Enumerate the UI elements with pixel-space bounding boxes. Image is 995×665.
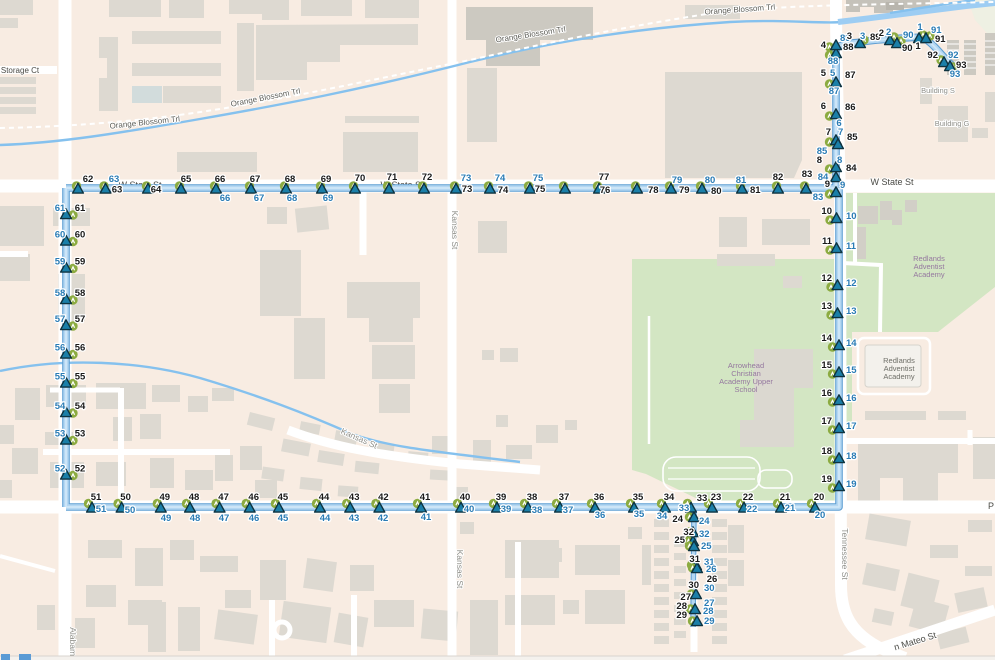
svg-text:Kansas St: Kansas St bbox=[455, 550, 465, 589]
svg-text:54: 54 bbox=[75, 401, 86, 412]
svg-text:75: 75 bbox=[533, 173, 544, 184]
svg-text:19: 19 bbox=[821, 474, 832, 485]
svg-text:18: 18 bbox=[846, 451, 857, 462]
svg-text:68: 68 bbox=[287, 193, 298, 204]
svg-text:81: 81 bbox=[736, 175, 747, 186]
svg-text:17: 17 bbox=[821, 416, 832, 427]
svg-text:53: 53 bbox=[75, 429, 86, 440]
svg-text:70: 70 bbox=[355, 173, 366, 184]
svg-text:10: 10 bbox=[846, 211, 857, 222]
svg-text:56: 56 bbox=[55, 343, 66, 354]
svg-text:65: 65 bbox=[181, 174, 192, 185]
svg-text:4: 4 bbox=[821, 40, 827, 51]
svg-text:33: 33 bbox=[697, 493, 708, 504]
svg-text:23: 23 bbox=[711, 492, 722, 503]
svg-text:21: 21 bbox=[780, 492, 791, 503]
svg-text:Kansas St: Kansas St bbox=[450, 211, 460, 250]
svg-text:6: 6 bbox=[821, 101, 826, 112]
svg-text:49: 49 bbox=[160, 492, 171, 503]
svg-text:85: 85 bbox=[847, 132, 858, 143]
svg-text:3: 3 bbox=[847, 31, 852, 42]
svg-text:79: 79 bbox=[672, 175, 683, 186]
svg-text:87: 87 bbox=[829, 86, 840, 97]
svg-text:15: 15 bbox=[846, 365, 857, 376]
svg-text:Building G: Building G bbox=[935, 119, 970, 128]
svg-text:83: 83 bbox=[813, 192, 824, 203]
svg-text:42: 42 bbox=[378, 492, 389, 503]
svg-text:66: 66 bbox=[215, 174, 226, 185]
svg-text:60: 60 bbox=[55, 230, 66, 241]
svg-text:45: 45 bbox=[278, 492, 289, 503]
svg-text:57: 57 bbox=[75, 314, 86, 325]
svg-text:10: 10 bbox=[821, 206, 832, 217]
svg-text:48: 48 bbox=[190, 513, 201, 524]
svg-text:42: 42 bbox=[378, 513, 389, 524]
svg-text:25: 25 bbox=[701, 541, 712, 552]
svg-text:56: 56 bbox=[75, 343, 86, 354]
svg-text:20: 20 bbox=[814, 492, 825, 503]
svg-text:2: 2 bbox=[879, 28, 884, 39]
svg-text:24: 24 bbox=[699, 516, 710, 527]
svg-text:14: 14 bbox=[821, 333, 832, 344]
svg-text:7: 7 bbox=[826, 127, 831, 138]
svg-text:50: 50 bbox=[125, 505, 136, 516]
svg-text:40: 40 bbox=[460, 492, 471, 503]
svg-text:44: 44 bbox=[319, 492, 330, 503]
svg-text:59: 59 bbox=[55, 257, 66, 268]
svg-text:54: 54 bbox=[55, 401, 66, 412]
svg-text:46: 46 bbox=[248, 492, 259, 503]
svg-text:22: 22 bbox=[743, 492, 754, 503]
svg-text:2: 2 bbox=[886, 27, 891, 38]
svg-text:61: 61 bbox=[75, 203, 86, 214]
svg-text:1: 1 bbox=[917, 22, 923, 33]
svg-text:58: 58 bbox=[75, 288, 86, 299]
svg-text:Building S: Building S bbox=[921, 86, 955, 95]
svg-text:84: 84 bbox=[846, 163, 857, 174]
svg-text:51: 51 bbox=[91, 492, 102, 503]
svg-text:7: 7 bbox=[838, 127, 843, 138]
svg-text:74: 74 bbox=[495, 173, 506, 184]
svg-text:41: 41 bbox=[420, 492, 431, 503]
svg-text:45: 45 bbox=[278, 513, 289, 524]
svg-text:Academy: Academy bbox=[883, 372, 915, 381]
svg-text:86: 86 bbox=[845, 102, 856, 113]
svg-text:41: 41 bbox=[421, 512, 432, 523]
svg-text:Tennessee St: Tennessee St bbox=[840, 528, 850, 580]
svg-text:92: 92 bbox=[927, 50, 938, 61]
svg-text:20: 20 bbox=[815, 510, 826, 521]
svg-text:43: 43 bbox=[349, 513, 360, 524]
svg-text:60: 60 bbox=[75, 230, 86, 241]
svg-text:55: 55 bbox=[55, 372, 66, 383]
svg-text:73: 73 bbox=[462, 184, 473, 195]
svg-text:8: 8 bbox=[837, 155, 842, 166]
svg-text:66: 66 bbox=[220, 193, 231, 204]
svg-text:21: 21 bbox=[785, 503, 796, 514]
svg-text:74: 74 bbox=[498, 185, 509, 196]
svg-text:15: 15 bbox=[821, 360, 832, 371]
svg-text:61: 61 bbox=[55, 203, 66, 214]
svg-text:88: 88 bbox=[828, 56, 839, 67]
svg-text:12: 12 bbox=[821, 273, 832, 284]
svg-text:83: 83 bbox=[802, 169, 813, 180]
svg-text:36: 36 bbox=[595, 510, 606, 521]
svg-text:82: 82 bbox=[773, 172, 784, 183]
svg-text:30: 30 bbox=[688, 580, 699, 591]
svg-text:52: 52 bbox=[55, 464, 66, 475]
svg-text:37: 37 bbox=[563, 505, 574, 516]
svg-text:35: 35 bbox=[633, 492, 644, 503]
svg-text:29: 29 bbox=[704, 616, 715, 627]
svg-text:19: 19 bbox=[846, 479, 857, 490]
svg-text:43: 43 bbox=[349, 492, 360, 503]
svg-text:78: 78 bbox=[648, 185, 659, 196]
svg-text:31: 31 bbox=[689, 554, 700, 565]
svg-text:W State St: W State St bbox=[870, 177, 914, 187]
svg-text:81: 81 bbox=[750, 185, 761, 196]
svg-text:44: 44 bbox=[320, 513, 331, 524]
svg-text:34: 34 bbox=[664, 492, 675, 503]
svg-text:46: 46 bbox=[249, 513, 260, 524]
svg-text:47: 47 bbox=[219, 513, 230, 524]
svg-text:47: 47 bbox=[218, 492, 229, 503]
svg-text:8: 8 bbox=[817, 155, 822, 166]
svg-text:1: 1 bbox=[915, 41, 921, 52]
svg-text:48: 48 bbox=[189, 492, 200, 503]
svg-text:5: 5 bbox=[830, 68, 836, 79]
svg-text:18: 18 bbox=[821, 446, 832, 457]
svg-text:13: 13 bbox=[821, 301, 832, 312]
svg-text:11: 11 bbox=[846, 241, 857, 252]
svg-text:87: 87 bbox=[845, 70, 856, 81]
svg-text:53: 53 bbox=[55, 429, 66, 440]
svg-text:67: 67 bbox=[250, 174, 261, 185]
svg-text:80: 80 bbox=[705, 175, 716, 186]
svg-text:School: School bbox=[735, 385, 758, 394]
svg-text:32: 32 bbox=[683, 527, 694, 538]
svg-text:90: 90 bbox=[903, 30, 914, 41]
svg-text:63: 63 bbox=[112, 185, 123, 196]
svg-text:62: 62 bbox=[83, 174, 94, 185]
svg-text:24: 24 bbox=[672, 514, 683, 525]
svg-text:76: 76 bbox=[600, 185, 611, 196]
svg-text:Alabama: Alabama bbox=[68, 627, 78, 660]
svg-text:3: 3 bbox=[860, 31, 865, 42]
svg-text:63: 63 bbox=[109, 174, 120, 185]
svg-text:Academy: Academy bbox=[913, 270, 945, 279]
svg-text:68: 68 bbox=[285, 174, 296, 185]
svg-text:77: 77 bbox=[599, 172, 610, 183]
svg-text:79: 79 bbox=[679, 185, 690, 196]
svg-text:71: 71 bbox=[387, 172, 398, 183]
svg-text:39: 39 bbox=[496, 492, 507, 503]
svg-text:25: 25 bbox=[674, 535, 685, 546]
svg-text:17: 17 bbox=[846, 421, 857, 432]
svg-text:64: 64 bbox=[151, 185, 162, 196]
svg-text:33: 33 bbox=[679, 503, 690, 514]
svg-text:36: 36 bbox=[594, 492, 605, 503]
svg-text:30: 30 bbox=[704, 583, 715, 594]
svg-text:13: 13 bbox=[846, 306, 857, 317]
svg-text:67: 67 bbox=[254, 193, 265, 204]
svg-text:69: 69 bbox=[321, 174, 332, 185]
svg-text:73: 73 bbox=[461, 173, 472, 184]
svg-text:12: 12 bbox=[846, 278, 857, 289]
svg-text:16: 16 bbox=[846, 393, 857, 404]
svg-text:38: 38 bbox=[532, 505, 543, 516]
svg-text:37: 37 bbox=[559, 492, 570, 503]
svg-text:39: 39 bbox=[501, 504, 512, 515]
svg-text:51: 51 bbox=[96, 504, 107, 515]
svg-text:9: 9 bbox=[825, 179, 830, 190]
svg-text:40: 40 bbox=[464, 504, 475, 515]
svg-text:P: P bbox=[988, 501, 994, 511]
svg-text:38: 38 bbox=[527, 492, 538, 503]
svg-text:22: 22 bbox=[747, 504, 758, 515]
svg-text:93: 93 bbox=[950, 69, 961, 80]
svg-text:9: 9 bbox=[840, 180, 845, 191]
svg-text:11: 11 bbox=[822, 236, 833, 247]
svg-text:57: 57 bbox=[55, 314, 66, 325]
svg-text:34: 34 bbox=[657, 511, 668, 522]
svg-text:80: 80 bbox=[711, 186, 722, 197]
svg-text:5: 5 bbox=[821, 68, 827, 79]
svg-text:90: 90 bbox=[902, 43, 913, 54]
svg-text:35: 35 bbox=[634, 509, 645, 520]
svg-text:50: 50 bbox=[120, 492, 131, 503]
svg-text:55: 55 bbox=[75, 372, 86, 383]
svg-text:59: 59 bbox=[75, 257, 86, 268]
svg-text:Storage Ct: Storage Ct bbox=[1, 66, 40, 75]
svg-text:72: 72 bbox=[422, 172, 433, 183]
svg-text:58: 58 bbox=[55, 288, 66, 299]
svg-text:14: 14 bbox=[846, 338, 857, 349]
svg-text:69: 69 bbox=[323, 193, 334, 204]
svg-text:32: 32 bbox=[699, 529, 710, 540]
svg-text:16: 16 bbox=[821, 388, 832, 399]
svg-text:29: 29 bbox=[676, 610, 687, 621]
svg-text:52: 52 bbox=[75, 464, 86, 475]
svg-text:75: 75 bbox=[535, 184, 546, 195]
svg-text:49: 49 bbox=[161, 513, 172, 524]
svg-text:91: 91 bbox=[935, 34, 946, 45]
